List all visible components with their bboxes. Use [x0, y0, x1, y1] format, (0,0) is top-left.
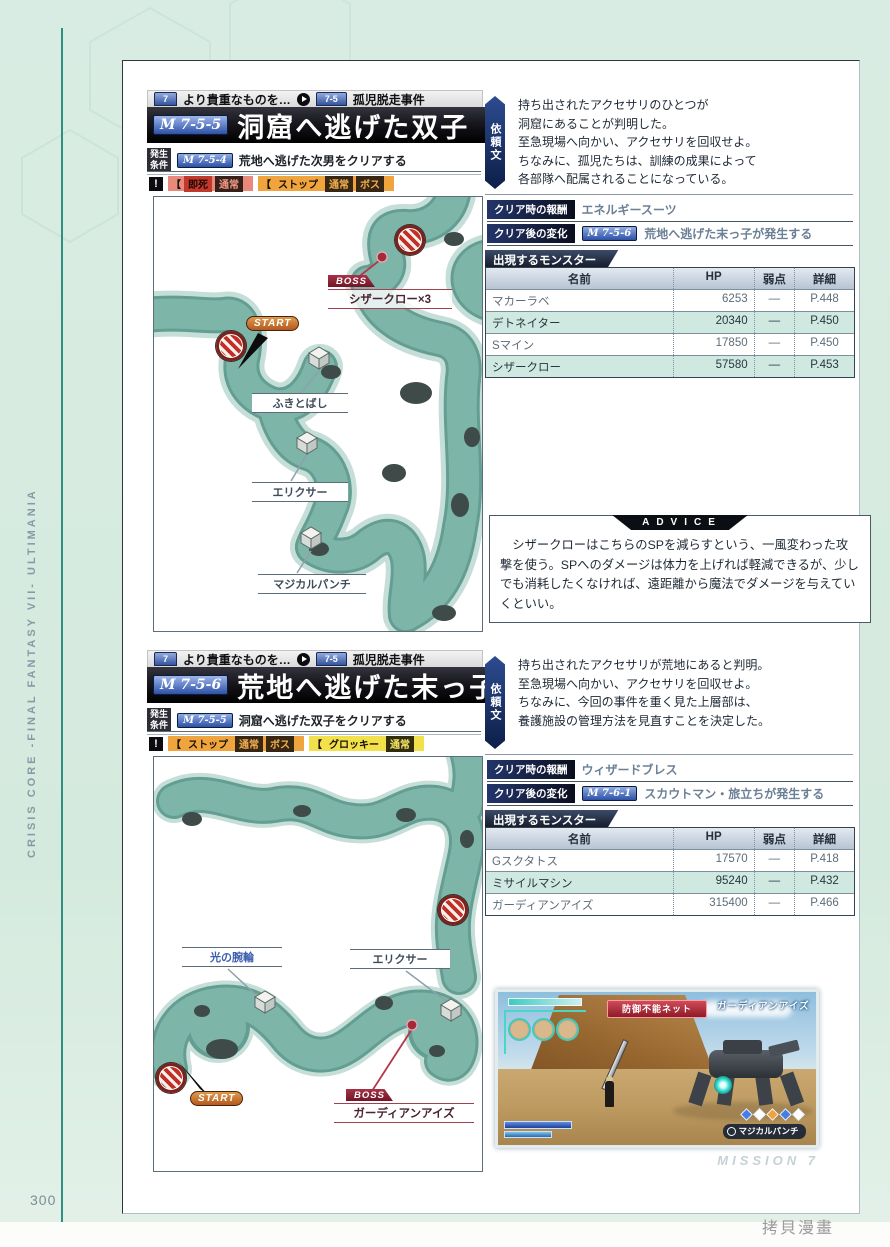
monster-hp: 95240	[674, 872, 755, 893]
start-badge: START	[190, 1091, 243, 1106]
status-immunity-row: ! 【 ストップ 通常 ボス 【 グロッキー 通常	[149, 736, 424, 751]
mission-title-bar: M 7-5-5 洞窟へ逃げた双子	[147, 107, 493, 143]
status-normal: 通常	[235, 736, 263, 752]
divider	[147, 171, 481, 175]
warning-icon: !	[149, 177, 163, 191]
change-mission-badge: M 7-6-1	[582, 786, 638, 801]
slot-icon	[753, 1108, 766, 1121]
status-group-stop: 【 ストップ 通常 ボス	[258, 176, 394, 191]
condition-label: 発生条件	[147, 708, 171, 732]
col-weak: 弱点	[755, 828, 795, 849]
monster-row: シザークロー 57580 — P.453	[486, 355, 854, 377]
monster-name: ガーディアンアイズ	[486, 894, 674, 915]
monster-hp: 20340	[674, 312, 755, 333]
mission-title-bar: M 7-5-6 荒地へ逃げた末っ子	[147, 667, 493, 703]
play-icon	[297, 653, 310, 666]
monster-row: ミサイルマシン 95240 — P.432	[486, 871, 854, 893]
col-hp: HP	[674, 828, 755, 849]
item-label: ふきとばし	[252, 393, 348, 413]
monster-name: Gスクタトス	[486, 850, 674, 871]
section-tab: 7-5	[316, 652, 347, 666]
reward-value: エネルギースーツ	[582, 201, 677, 218]
mech-leg	[780, 1072, 804, 1107]
party-portrait	[508, 1018, 531, 1041]
change-label: クリア後の変化	[487, 784, 575, 803]
condition-label-line2: 条件	[150, 720, 168, 730]
status-group-stop: 【 ストップ 通常 ボス	[168, 736, 304, 751]
item-label: エリクサー	[252, 482, 348, 502]
col-detail: 詳細	[795, 828, 854, 849]
bracket: 【	[261, 176, 271, 191]
barrier-icon	[438, 895, 468, 925]
bracket: 【	[312, 736, 322, 751]
status-stop: ストップ	[274, 176, 322, 192]
monster-detail-page: P.448	[795, 290, 854, 311]
request-text: 持ち出されたアクセサリが荒地にあると判明。 至急現場へ向かい、アクセサリを回収せ…	[518, 651, 853, 730]
hud-hp-bar	[504, 1121, 572, 1129]
advice-banner: ADVICE	[612, 515, 748, 530]
mission-id-badge: M 7-5-5	[153, 115, 228, 135]
bracket: 【	[171, 736, 181, 751]
change-mission-badge: M 7-5-6	[582, 226, 638, 241]
battle-screenshot: 防御不能ネット ガーディアンアイズ マジカルパンチ	[495, 989, 819, 1148]
mission-map-wasteland: START BOSS ガーディアンアイズ 光の腕輪 エリクサー	[153, 756, 483, 1172]
guide-page: CRISIS CORE -FINAL FANTASY VII- ULTIMANI…	[0, 0, 890, 1247]
status-immunity-row: ! 【 即死 通常 【 ストップ 通常 ボス	[149, 176, 394, 191]
request-block: 依頼文 持ち出されたアクセサリのひとつが 洞窟にあることが判明した。 至急現場へ…	[485, 91, 853, 195]
monster-row: マカーラベ 6253 — P.448	[486, 289, 854, 311]
after-clear-row: クリア後の変化 M 7-6-1 スカウトマン・旅立ちが発生する	[487, 784, 853, 806]
status-normal: 通常	[325, 176, 353, 192]
book-spine-title: CRISIS CORE -FINAL FANTASY VII- ULTIMANI…	[26, 418, 38, 858]
col-hp: HP	[674, 268, 755, 289]
col-weak: 弱点	[755, 268, 795, 289]
monster-row: Gスクタトス 17570 — P.418	[486, 849, 854, 871]
chapter-tab: 7	[154, 92, 177, 106]
item-label: マジカルパンチ	[258, 574, 366, 594]
mech-turret	[723, 1040, 762, 1053]
monster-row: ガーディアンアイズ 315400 — P.466	[486, 893, 854, 915]
mission-title: 荒地へ逃げた末っ子	[237, 666, 498, 705]
col-name: 名前	[486, 828, 674, 849]
request-tab-label: 依頼文	[487, 683, 503, 722]
monster-detail-page: P.432	[795, 872, 854, 893]
status-boss: ボス	[356, 176, 384, 192]
chapter-tab: 7	[154, 652, 177, 666]
monster-table: 名前 HP 弱点 詳細 マカーラベ 6253 — P.448 デトネイター 20…	[485, 267, 855, 378]
dmw-slot-icons	[742, 1110, 803, 1119]
condition-mission-badge: M 7-5-5	[177, 713, 233, 728]
status-normal: 通常	[386, 736, 414, 752]
monster-name: マカーラベ	[486, 290, 674, 311]
boss-name-label: シザークロー×3	[328, 289, 452, 309]
monster-weakness: —	[755, 356, 795, 377]
condition-text: 荒地へ逃げた次男をクリアする	[239, 152, 407, 169]
monster-name: デトネイター	[486, 312, 674, 333]
barrier-icon	[395, 225, 425, 255]
mission-id-badge: M 7-5-6	[153, 675, 228, 695]
condition-mission-badge: M 7-5-4	[177, 153, 233, 168]
hud-party-frame	[504, 1010, 586, 1054]
monster-weakness: —	[755, 290, 795, 311]
monster-table-header: 名前 HP 弱点 詳細	[486, 268, 854, 289]
condition-label-line2: 条件	[150, 160, 168, 170]
status-instant-death: 即死	[184, 176, 212, 192]
start-badge: START	[246, 316, 299, 331]
monster-weakness: —	[755, 334, 795, 355]
condition-text: 洞窟へ逃げた双子をクリアする	[239, 712, 407, 729]
status-normal: 通常	[215, 176, 243, 192]
command-label: マジカルパンチ	[723, 1124, 807, 1139]
monster-hp: 315400	[674, 894, 755, 915]
slot-icon	[740, 1108, 753, 1121]
clear-reward-row: クリア時の報酬 ウィザードブレス	[487, 760, 853, 782]
advice-box: ADVICE シザークローはこちらのSPを減らすという、一風変わった攻撃を使う。…	[489, 515, 871, 623]
condition-label: 発生条件	[147, 148, 171, 172]
barrier-icon	[156, 1063, 186, 1093]
monster-hp: 17570	[674, 850, 755, 871]
boss-name-label: ガーディアンアイズ	[334, 1103, 474, 1123]
unlock-condition-row: 発生条件 M 7-5-4 荒地へ逃げた次男をクリアする	[147, 148, 407, 172]
scan-watermark: 拷貝漫畫	[762, 1214, 834, 1238]
content-panel: 7 より貴重なものを… 7-5 孤児脱走事件 M 7-5-5 洞窟へ逃げた双子 …	[122, 60, 860, 1214]
unlock-condition-row: 発生条件 M 7-5-5 洞窟へ逃げた双子をクリアする	[147, 708, 407, 732]
play-icon	[297, 93, 310, 106]
boss-mech-guardian-eyes	[689, 1044, 803, 1105]
monster-weakness: —	[755, 894, 795, 915]
monster-row: Sマイン 17850 — P.450	[486, 333, 854, 355]
bottom-margin	[0, 1222, 890, 1247]
monster-detail-page: P.418	[795, 850, 854, 871]
monster-hp: 6253	[674, 290, 755, 311]
condition-label-line1: 発生	[150, 149, 168, 159]
monster-hp: 17850	[674, 334, 755, 355]
request-tab: 依頼文	[485, 96, 505, 189]
status-stop: ストップ	[184, 736, 232, 752]
status-group-instant-death: 【 即死 通常	[168, 176, 253, 191]
reward-label: クリア時の報酬	[487, 200, 575, 219]
condition-label-line1: 発生	[150, 709, 168, 719]
party-portrait	[532, 1018, 555, 1041]
monster-hp: 57580	[674, 356, 755, 377]
mission-footer-watermark: MISSION 7	[593, 1153, 819, 1168]
mission-title: 洞窟へ逃げた双子	[237, 106, 469, 145]
monster-name: ミサイルマシン	[486, 872, 674, 893]
enemy-name-label: ガーディアンアイズ	[717, 998, 810, 1012]
status-group-groggy: 【 グロッキー 通常	[309, 736, 424, 751]
section-tab: 7-5	[316, 92, 347, 106]
monster-table: 名前 HP 弱点 詳細 Gスクタトス 17570 — P.418 ミサイルマシン…	[485, 827, 855, 916]
bracket: 【	[171, 176, 181, 191]
monster-detail-page: P.450	[795, 334, 854, 355]
monster-detail-page: P.450	[795, 312, 854, 333]
after-clear-row: クリア後の変化 M 7-5-6 荒地へ逃げた末っ子が発生する	[487, 224, 853, 246]
monster-table-header: 名前 HP 弱点 詳細	[486, 828, 854, 849]
reward-value: ウィザードブレス	[582, 761, 678, 778]
hud-mp-bar	[504, 1131, 552, 1138]
monster-detail-page: P.453	[795, 356, 854, 377]
col-name: 名前	[486, 268, 674, 289]
page-number: 300	[30, 1192, 56, 1208]
request-tab: 依頼文	[485, 656, 505, 749]
request-tab-label: 依頼文	[487, 123, 503, 162]
hud-top-bar	[508, 998, 582, 1006]
status-boss: ボス	[266, 736, 294, 752]
slot-icon	[766, 1108, 779, 1121]
monster-name: Sマイン	[486, 334, 674, 355]
slot-icon	[792, 1108, 805, 1121]
party-portrait	[556, 1018, 579, 1041]
col-detail: 詳細	[795, 268, 854, 289]
item-label: 光の腕輪	[182, 947, 282, 967]
request-block: 依頼文 持ち出されたアクセサリが荒地にあると判明。 至急現場へ向かい、アクセサリ…	[485, 651, 853, 755]
slot-icon	[779, 1108, 792, 1121]
divider	[147, 731, 481, 735]
change-label: クリア後の変化	[487, 224, 575, 243]
monster-row: デトネイター 20340 — P.450	[486, 311, 854, 333]
clear-reward-row: クリア時の報酬 エネルギースーツ	[487, 200, 853, 222]
barrier-icon	[216, 331, 246, 361]
change-text: スカウトマン・旅立ちが発生する	[644, 785, 824, 802]
request-text: 持ち出されたアクセサリのひとつが 洞窟にあることが判明した。 至急現場へ向かい、…	[518, 91, 853, 189]
change-text: 荒地へ逃げた末っ子が発生する	[644, 225, 812, 242]
reward-label: クリア時の報酬	[487, 760, 575, 779]
mech-leg	[689, 1072, 712, 1106]
mission-map-cave: START BOSS シザークロー×3 ふきとばし エリクサー マジカルパンチ	[153, 196, 483, 632]
monster-weakness: —	[755, 872, 795, 893]
monster-name: シザークロー	[486, 356, 674, 377]
status-groggy: グロッキー	[325, 736, 383, 752]
monster-weakness: —	[755, 312, 795, 333]
advice-text: シザークローはこちらのSPを減らすという、一風変わった攻撃を使う。SPへのダメー…	[500, 536, 860, 614]
sidebar-divider-line	[61, 28, 63, 1226]
player-character	[605, 1081, 614, 1107]
monster-weakness: —	[755, 850, 795, 871]
battle-alert-banner: 防御不能ネット	[607, 1000, 707, 1018]
warning-icon: !	[149, 737, 163, 751]
item-label: エリクサー	[350, 949, 450, 969]
monster-detail-page: P.466	[795, 894, 854, 915]
cave-map-drawing	[154, 197, 482, 631]
